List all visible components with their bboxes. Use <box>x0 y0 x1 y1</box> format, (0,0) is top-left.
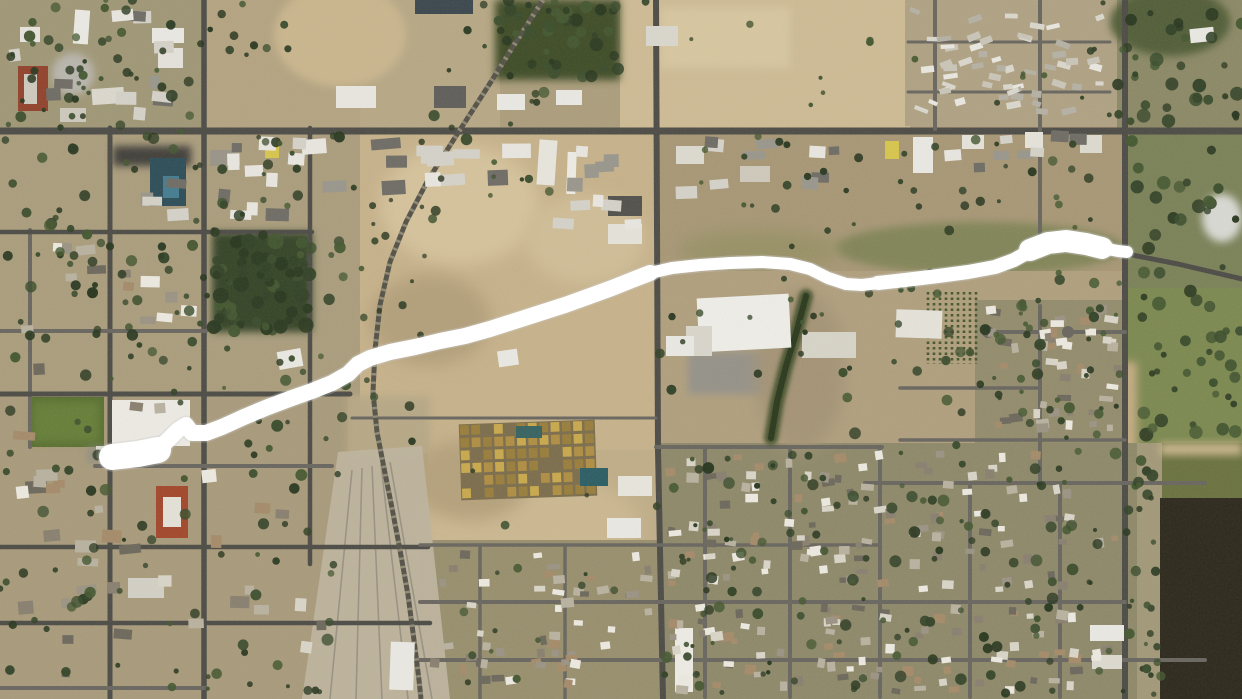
satellite-map <box>0 0 1242 699</box>
route-path-segment <box>1030 241 1102 250</box>
photo-grain-overlay <box>0 0 1242 699</box>
aerial-imagery <box>0 0 1242 699</box>
route-path-segment <box>1102 248 1127 252</box>
